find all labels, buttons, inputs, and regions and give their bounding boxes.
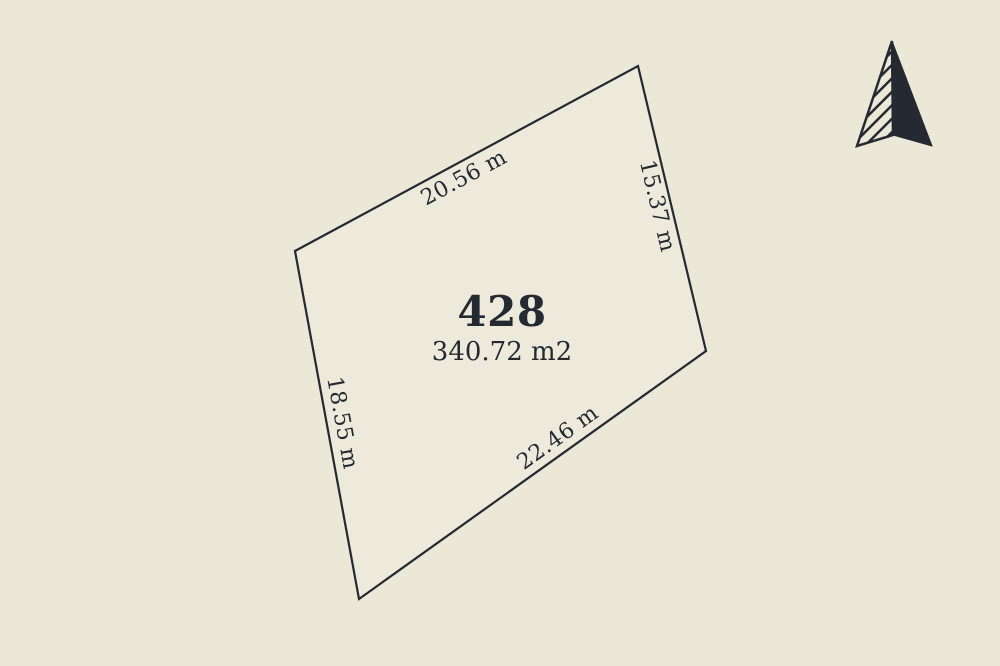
lot-number: 428 [432,291,572,333]
north-arrow-icon [850,38,935,150]
lot-area: 340.72 m2 [432,339,572,365]
lot-plan-diagram: 20.56 m 15.37 m 18.55 m 22.46 m 428 340.… [0,0,1000,666]
lot-identity: 428 340.72 m2 [432,291,572,365]
